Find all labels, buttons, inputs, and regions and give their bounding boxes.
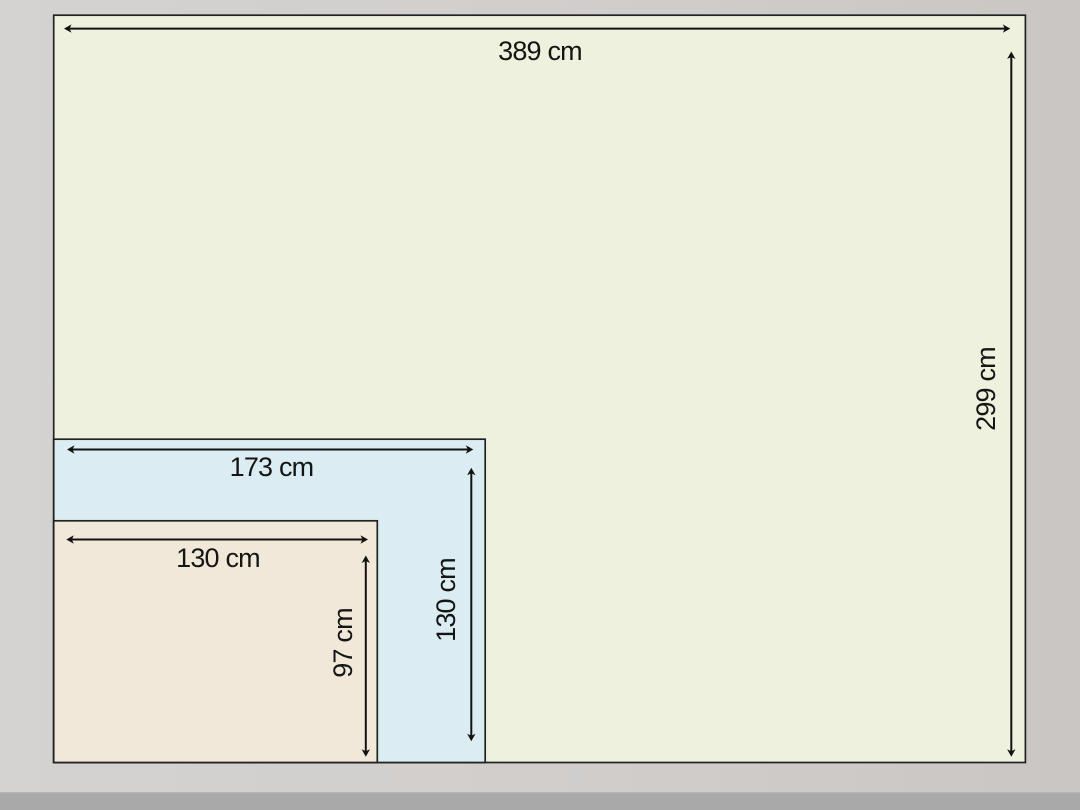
svg-text:299 cm: 299 cm [971,347,1001,431]
svg-text:130 cm: 130 cm [176,543,260,573]
svg-text:389 cm: 389 cm [498,36,582,66]
svg-text:130 cm: 130 cm [431,558,461,642]
svg-text:97 cm: 97 cm [328,608,358,678]
svg-text:173 cm: 173 cm [230,452,314,482]
